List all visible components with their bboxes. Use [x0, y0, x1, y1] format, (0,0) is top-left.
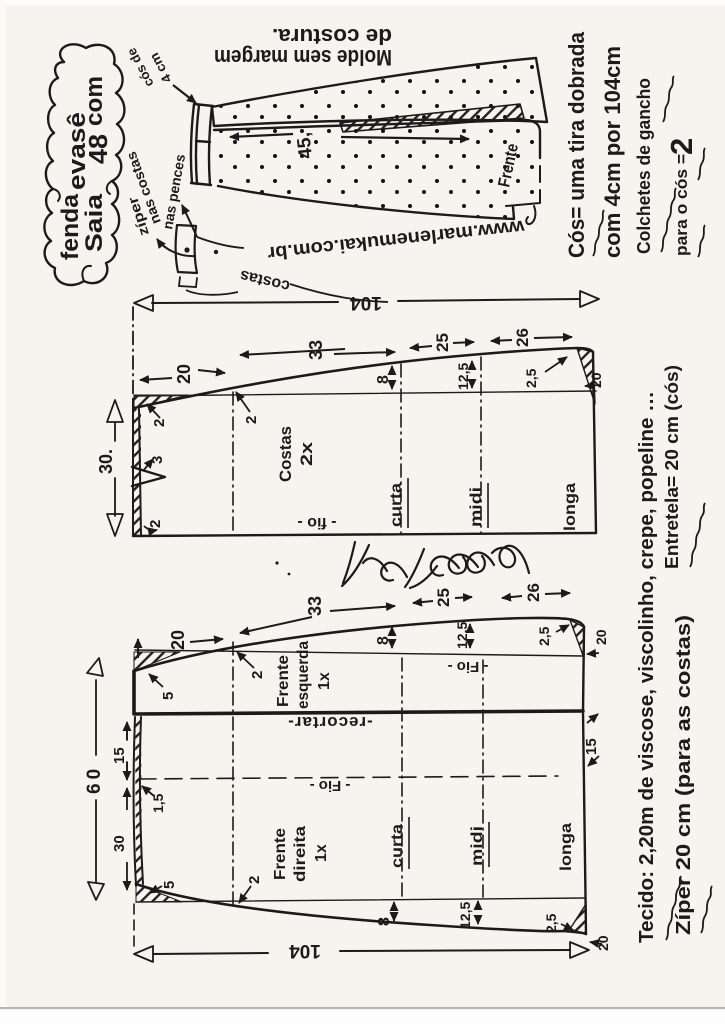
svg-text:8: 8: [376, 917, 393, 926]
svg-text:1,5: 1,5: [150, 793, 166, 813]
svg-text:33: 33: [306, 340, 326, 360]
svg-text:2,5: 2,5: [523, 368, 539, 388]
svg-text:Costas: Costas: [276, 426, 295, 482]
svg-text:- Fio -: - Fio -: [310, 777, 351, 794]
svg-text:midi: midi: [469, 826, 486, 866]
svg-text:Zíper 20 cm (para as costas): Zíper 20 cm (para as costas): [673, 615, 695, 935]
svg-text:33: 33: [305, 596, 325, 616]
svg-text:45,: 45,: [293, 131, 317, 159]
svg-text:26: 26: [513, 328, 532, 347]
svg-text:com 4cm por 104cm: com 4cm por 104cm: [600, 46, 625, 258]
svg-text:Colchetes de gancho: Colchetes de gancho: [634, 78, 654, 254]
svg-text:5: 5: [161, 881, 178, 889]
svg-text:25: 25: [434, 588, 453, 607]
svg-text:curta: curta: [389, 824, 406, 868]
svg-text:Tecido: 2,20m de viscose, vis: Tecido: 2,20m de viscose, viscolinho, cr…: [636, 391, 658, 943]
svg-text:Saia: Saia: [81, 193, 108, 252]
svg-text:2: 2: [249, 671, 266, 679]
svg-text:longa: longa: [562, 483, 579, 531]
svg-text:2,5: 2,5: [536, 626, 552, 646]
svg-text:8: 8: [375, 636, 392, 645]
svg-text:fenda: fenda: [57, 193, 84, 260]
svg-text:20: 20: [174, 364, 194, 384]
svg-text:25: 25: [433, 333, 452, 352]
svg-text:60: 60: [84, 765, 105, 794]
svg-text:midi: midi: [468, 487, 485, 527]
svg-text:15: 15: [111, 747, 128, 764]
svg-text:104: 104: [350, 292, 382, 313]
svg-text:esquerda: esquerda: [295, 641, 312, 709]
svg-text:2: 2: [246, 876, 263, 884]
svg-text:para o cós =: para o cós =: [672, 154, 691, 256]
svg-text:2: 2: [151, 419, 168, 427]
svg-text:30.: 30.: [96, 449, 116, 474]
svg-text:curta: curta: [388, 483, 405, 527]
svg-text:15: 15: [583, 738, 600, 755]
svg-text:-recortar-: -recortar-: [287, 713, 373, 732]
svg-text:1x: 1x: [313, 844, 330, 862]
svg-text:12,5: 12,5: [457, 902, 473, 929]
svg-text:de costura.: de costura.: [272, 24, 392, 49]
svg-text:- fio -: - fio -: [297, 514, 336, 531]
svg-text:104: 104: [289, 940, 321, 961]
svg-text:- Fio -: - Fio -: [448, 658, 489, 675]
svg-text:12,5: 12,5: [455, 363, 471, 390]
svg-text:26: 26: [524, 583, 543, 602]
svg-text:12,5: 12,5: [454, 622, 470, 649]
svg-text:20: 20: [168, 630, 188, 650]
svg-text:direita: direita: [292, 826, 309, 882]
svg-text:2: 2: [147, 520, 164, 528]
svg-text:8: 8: [375, 375, 392, 384]
svg-text:2: 2: [243, 416, 260, 424]
svg-text:Frente: Frente: [272, 828, 289, 880]
svg-text:30: 30: [111, 835, 128, 852]
svg-text:longa: longa: [558, 823, 575, 871]
svg-text:2: 2: [664, 138, 699, 155]
svg-text:5: 5: [160, 692, 177, 700]
svg-text:Entretela= 20 cm (cós): Entretela= 20 cm (cós): [662, 365, 682, 569]
svg-text:2,5: 2,5: [543, 913, 559, 933]
svg-text:2x: 2x: [297, 441, 316, 466]
svg-text:com: com: [81, 76, 108, 126]
svg-text:20: 20: [593, 629, 609, 645]
svg-text:1x: 1x: [316, 672, 333, 690]
svg-text:48: 48: [83, 134, 113, 164]
svg-text:Cós= uma tira dobrada: Cós= uma tira dobrada: [564, 31, 589, 258]
svg-text:Frente: Frente: [275, 655, 292, 707]
